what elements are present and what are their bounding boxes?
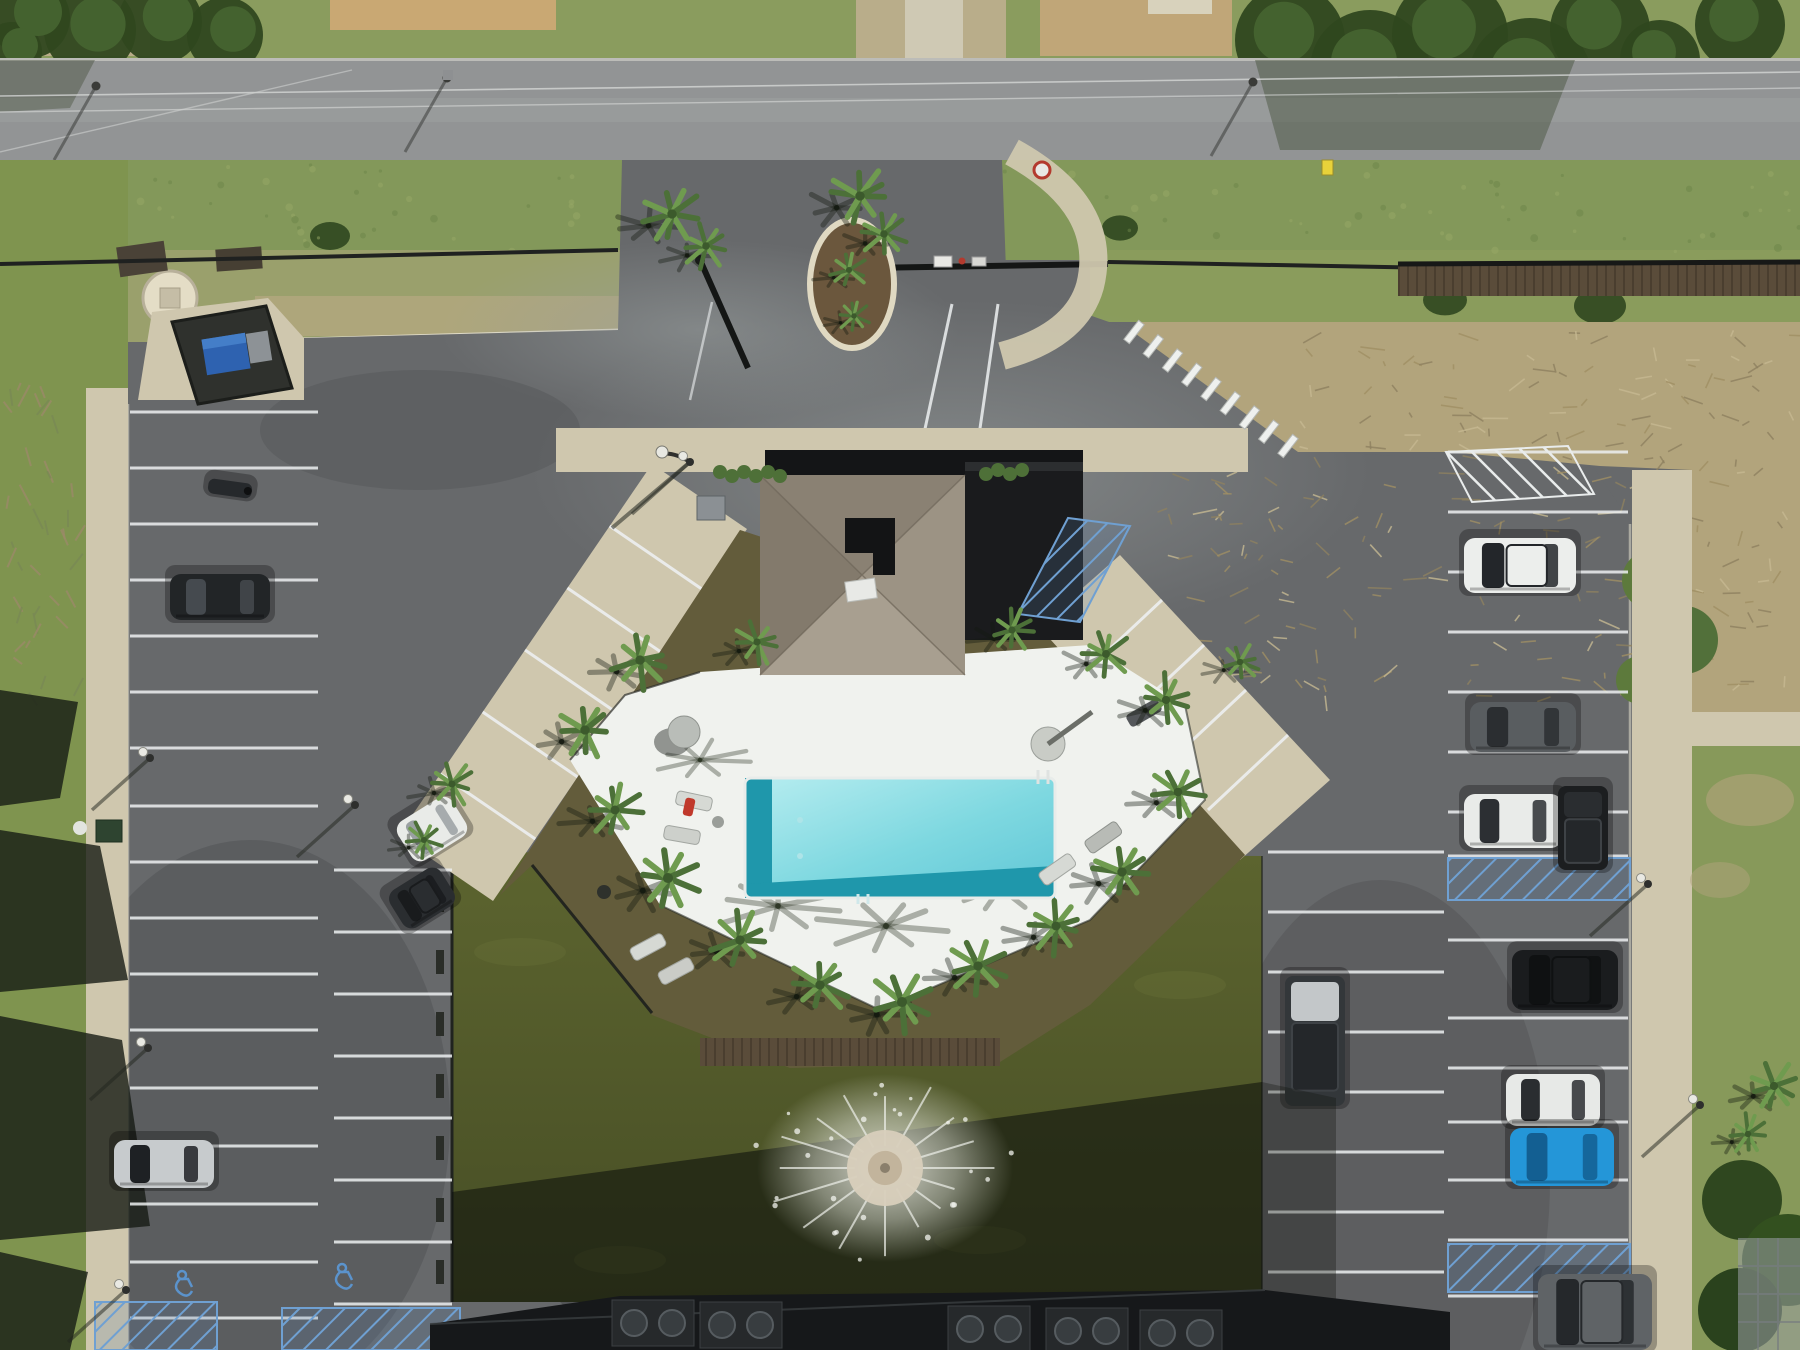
side-table	[712, 816, 724, 828]
grass-fleck	[1372, 162, 1379, 169]
palm-crown	[1174, 788, 1183, 797]
skylight	[845, 578, 877, 602]
grass-fleck	[157, 206, 162, 211]
grass-fleck	[378, 183, 383, 188]
brush-stroke	[1789, 335, 1800, 336]
brush-stroke	[1737, 472, 1745, 473]
grass-fleck	[1128, 229, 1132, 233]
grass-fleck	[1440, 231, 1444, 235]
grass-fleck	[285, 203, 293, 211]
palm-crown	[663, 873, 673, 883]
condenser-fan	[659, 1310, 685, 1336]
lamp-head	[139, 748, 148, 757]
palm-crown	[846, 267, 852, 273]
no-parking-stripes	[1446, 446, 1594, 502]
palm-crown	[448, 780, 455, 787]
grass-fleck	[1573, 229, 1577, 233]
grass-fleck	[1428, 210, 1432, 214]
yellow-sign	[1322, 160, 1333, 175]
grass-fleck	[406, 196, 412, 202]
condenser-fan	[1149, 1320, 1175, 1346]
palm-crown	[897, 997, 907, 1007]
pole-base	[144, 1044, 152, 1052]
palm-crown	[580, 725, 589, 734]
grass-fleck	[372, 228, 376, 232]
palm-crown	[1102, 650, 1110, 658]
grass-fleck	[1489, 180, 1493, 184]
grass-fleck	[1561, 174, 1564, 177]
grass-fleck	[1380, 205, 1386, 211]
boardwalk-fence	[1398, 264, 1800, 296]
transformer	[443, 70, 453, 80]
brush-stroke	[1229, 524, 1242, 525]
lamp-head	[1637, 874, 1646, 883]
white-car-mid	[1459, 785, 1567, 851]
spray-droplet	[775, 1196, 779, 1200]
condenser-fan	[621, 1310, 647, 1336]
palm-crown	[1745, 1131, 1751, 1137]
spray-droplet	[831, 1196, 837, 1202]
palm-crown	[1770, 1082, 1778, 1090]
gray-bin	[246, 330, 272, 363]
rear-window	[1583, 1134, 1598, 1180]
grass-fleck	[209, 202, 212, 205]
grass-fleck	[265, 214, 268, 217]
tree-shadow-on-road	[1255, 60, 1575, 150]
grass-fleck	[354, 190, 359, 195]
grass-fleck	[1445, 233, 1452, 240]
grass-fleck	[364, 171, 367, 174]
grass-fleck	[1388, 212, 1395, 219]
grass-fleck	[1774, 244, 1782, 252]
grass-fleck	[1363, 172, 1370, 179]
grass-fleck	[1234, 183, 1239, 188]
grass-fleck	[1345, 221, 1352, 228]
building-shadow-on-aisle	[1262, 1082, 1336, 1302]
grass-fleck	[1212, 189, 1219, 196]
grass-fleck	[1750, 186, 1753, 189]
white-suv	[1459, 529, 1581, 596]
palm-crown	[753, 638, 760, 645]
windshield	[186, 579, 206, 615]
grass-fleck	[568, 220, 575, 227]
spray-droplet	[963, 1117, 968, 1122]
spray-droplet	[952, 1202, 957, 1207]
pole-base	[1696, 1101, 1704, 1109]
truck-bed	[1292, 1023, 1338, 1091]
windshield	[1480, 799, 1500, 843]
windshield	[130, 1145, 150, 1183]
ac-pad	[612, 1300, 694, 1346]
grass-fleck	[1787, 209, 1790, 212]
pole-base	[351, 801, 359, 809]
windshield	[1556, 1279, 1579, 1345]
rear-window	[184, 1146, 198, 1182]
dirt-spot	[1706, 774, 1794, 826]
boardwalk-rail	[1398, 262, 1800, 264]
truck-bed	[1565, 819, 1601, 863]
gate-sign-1	[934, 256, 952, 267]
pole-base	[686, 458, 694, 466]
grass-fleck	[1003, 169, 1007, 173]
grass-fleck	[392, 210, 398, 216]
pole-base	[122, 1286, 130, 1294]
lamp-head	[656, 446, 668, 458]
black-pickup	[1553, 777, 1613, 873]
spray-droplet	[909, 1097, 912, 1100]
spray-droplet	[1009, 1150, 1014, 1155]
hedge-shrub	[1003, 467, 1017, 481]
brush-stroke	[1735, 459, 1736, 466]
tree-highlight	[1254, 2, 1315, 63]
palm-crown	[880, 230, 888, 238]
grass-fleck	[1495, 193, 1499, 197]
palm-crown	[635, 655, 644, 664]
gray-sedan	[1465, 693, 1581, 755]
boardwalk	[700, 1038, 1000, 1066]
grass-fleck	[1150, 194, 1158, 202]
spray-droplet	[946, 1121, 950, 1125]
palm-shadow-frond	[967, 639, 994, 642]
grass-fleck	[1768, 171, 1774, 177]
algae-patch	[1134, 971, 1226, 999]
lamp-head	[679, 452, 688, 461]
gate-sign-2	[972, 257, 986, 266]
condenser-fan	[995, 1316, 1021, 1342]
grass-fleck	[1784, 191, 1789, 196]
grass-fleck	[1493, 181, 1500, 188]
curb-stop	[436, 1198, 444, 1222]
spray-droplet	[969, 1170, 973, 1174]
grass-fleck	[168, 180, 172, 184]
curb-stop	[436, 950, 444, 974]
curb-pad	[1148, 0, 1212, 14]
hatch-area	[95, 1302, 217, 1350]
grass-fleck	[217, 182, 224, 189]
grass-fleck	[171, 216, 174, 219]
hedge-shrub	[991, 463, 1005, 477]
car-body	[1470, 702, 1576, 752]
palm-crown	[1052, 922, 1061, 931]
hedge-shrub	[725, 469, 739, 483]
pole-base	[1644, 880, 1652, 888]
hedge-shrub	[737, 465, 751, 479]
lamp-head	[137, 1038, 146, 1047]
grass-fleck	[569, 203, 574, 208]
grass-fleck	[1759, 209, 1763, 213]
pool-deep-edge-west	[745, 778, 772, 898]
palm-crown	[815, 980, 824, 989]
condenser-fan	[957, 1316, 983, 1342]
grass-fleck	[527, 204, 531, 208]
grass-fleck	[1623, 237, 1626, 240]
grass-fleck	[1461, 185, 1466, 190]
hedge-shrub	[979, 467, 993, 481]
palm-crown	[1008, 626, 1015, 633]
car-body	[170, 574, 270, 620]
grass-fleck	[1710, 232, 1716, 238]
car-body	[1506, 1074, 1600, 1126]
pad-hatch-lid	[160, 288, 180, 308]
grass-fleck	[1555, 191, 1559, 195]
side-path	[1692, 712, 1800, 746]
grass-fleck	[291, 216, 298, 223]
palm-crown	[702, 242, 710, 250]
spray-droplet	[772, 1203, 777, 1208]
aerial-photo-stage	[0, 0, 1800, 1350]
condenser-fan	[1187, 1320, 1213, 1346]
rear-window	[1544, 708, 1559, 746]
tire-wear	[260, 370, 580, 490]
rear-window	[1533, 800, 1547, 842]
roof-rails	[1552, 957, 1590, 1003]
curb-stop	[436, 1136, 444, 1160]
palm-shadow-frond	[559, 821, 593, 823]
grass-fleck	[1501, 205, 1505, 209]
truck-cab	[1291, 982, 1339, 1021]
pool-light-dot-2	[797, 853, 803, 859]
rear-window	[1572, 1080, 1585, 1120]
silver-car-left	[109, 1131, 219, 1191]
utility-cabinet	[697, 496, 725, 520]
bush	[310, 222, 350, 250]
grass-fleck	[1674, 250, 1677, 253]
utility-pole	[1249, 78, 1258, 87]
brush-stroke	[1471, 665, 1479, 666]
palm-crown	[1117, 867, 1126, 876]
brush-stroke	[1697, 525, 1698, 532]
utility-box-green	[96, 820, 122, 842]
windshield	[1527, 1133, 1548, 1181]
pool-light-dot	[797, 817, 803, 823]
brush-stroke	[1273, 637, 1287, 638]
dirt-spot-2	[1690, 862, 1750, 898]
brush-stroke	[1616, 645, 1634, 646]
spray-droplet	[925, 1235, 931, 1241]
hedge-shrub	[713, 465, 727, 479]
palm-crown	[851, 313, 856, 318]
round-table-nw	[668, 716, 700, 748]
tree-highlight	[210, 6, 256, 52]
palm-crown	[667, 209, 676, 218]
grass-fleck	[1576, 209, 1583, 216]
windshield	[1521, 1079, 1540, 1121]
spray-droplet	[832, 1231, 837, 1236]
grass-fleck	[1688, 239, 1692, 243]
black-car-left	[165, 565, 275, 623]
brush-stroke	[1211, 516, 1222, 517]
curb-stop	[436, 1260, 444, 1284]
car-body	[1464, 794, 1562, 848]
hip-roof	[760, 475, 965, 675]
spray-droplet	[787, 1112, 790, 1115]
roof-rails	[1581, 1281, 1622, 1343]
grass-fleck	[137, 197, 145, 205]
car-body	[1510, 1128, 1614, 1186]
ac-pad	[1046, 1308, 1128, 1350]
nozzle	[880, 1163, 890, 1173]
pole-base	[146, 754, 154, 762]
ac-pad	[1140, 1310, 1222, 1350]
palm-crown	[735, 935, 744, 944]
spray-droplet	[898, 1112, 903, 1117]
grass-fleck	[262, 178, 269, 185]
grass-fleck	[557, 177, 560, 180]
spray-droplet	[794, 1128, 800, 1134]
brush-stroke	[1563, 407, 1578, 408]
grass-fleck	[1400, 203, 1406, 209]
exit-gate-closed	[870, 264, 1108, 268]
curb-stop	[436, 1074, 444, 1098]
grass-fleck	[1163, 218, 1168, 223]
grass-fleck	[1105, 195, 1109, 199]
lamp-head	[1689, 1095, 1698, 1104]
grass-fleck	[379, 169, 382, 172]
brush-stroke	[1368, 588, 1392, 589]
grass-fleck	[1299, 222, 1302, 225]
algae-patch	[474, 938, 566, 966]
hedge-shrub	[773, 469, 787, 483]
grass-fleck	[573, 212, 580, 219]
lamp-head	[115, 1280, 124, 1289]
palm-crown	[973, 961, 982, 970]
gate-sign-red	[959, 258, 966, 265]
grass-fleck	[1530, 234, 1538, 242]
palm-crown	[1162, 696, 1170, 704]
spray-droplet	[805, 1153, 810, 1158]
grass-fleck	[297, 229, 304, 236]
right-sidewalk	[1632, 470, 1692, 1350]
bush	[1102, 215, 1138, 240]
grass-fleck	[570, 174, 575, 179]
brush-stroke	[1727, 684, 1748, 685]
condenser-fan	[1055, 1318, 1081, 1344]
grass-fleck	[153, 178, 157, 182]
black-suv	[1507, 941, 1623, 1013]
grass-fleck	[1305, 231, 1308, 234]
windshield	[1482, 543, 1504, 588]
grass-fleck	[1491, 247, 1498, 254]
traffic-sign	[1034, 162, 1050, 178]
street	[0, 58, 1800, 162]
spray-droplet	[985, 1177, 990, 1182]
grass-fleck	[1131, 205, 1139, 213]
grass-fleck	[1213, 232, 1220, 239]
palm-crown	[421, 837, 427, 843]
condenser-fan	[709, 1312, 735, 1338]
roof-rails	[1507, 545, 1547, 586]
palm-crown	[611, 806, 620, 815]
blue-car	[1505, 1119, 1619, 1189]
brush-stroke	[1784, 676, 1785, 687]
condenser-fan	[1093, 1318, 1119, 1344]
spray-droplet	[861, 1117, 867, 1123]
truck-cab	[1564, 792, 1602, 817]
hedge-shrub	[1015, 463, 1029, 477]
spray-droplet	[893, 1108, 897, 1112]
rear-window	[240, 580, 254, 614]
grass-fleck	[1163, 190, 1170, 197]
grass-fleck	[303, 241, 310, 248]
trash-bin	[597, 885, 611, 899]
swimming-pool	[745, 770, 1055, 904]
grass-fleck	[226, 165, 230, 169]
car-body	[114, 1140, 214, 1188]
palm-crown	[855, 191, 864, 200]
ac-pad	[948, 1306, 1030, 1350]
satellite-dish	[73, 821, 87, 835]
brush-stroke	[1576, 331, 1577, 340]
spray-droplet	[873, 1092, 877, 1096]
grass-fleck	[1507, 218, 1510, 221]
ac-pad	[700, 1302, 782, 1348]
grass-fleck	[1355, 212, 1363, 220]
grass-fleck	[452, 237, 456, 241]
grass-fleck	[1686, 186, 1692, 192]
paver-drive	[330, 0, 556, 30]
gray-car-bottom	[1533, 1265, 1657, 1350]
windshield	[1487, 707, 1508, 747]
brush-stroke	[1745, 601, 1753, 602]
grass-fleck	[1289, 219, 1292, 222]
spray-droplet	[861, 1215, 867, 1221]
windshield	[1529, 955, 1550, 1005]
spray-droplet	[829, 1136, 833, 1140]
spray-droplet	[753, 1143, 758, 1148]
palm-crown	[1237, 659, 1243, 665]
grass-fleck	[1743, 211, 1749, 217]
grass-fleck	[317, 236, 320, 239]
spray-droplet	[879, 1083, 884, 1088]
brush-stroke	[1489, 429, 1490, 437]
condenser-fan	[747, 1312, 773, 1338]
grass-fleck	[1520, 205, 1527, 212]
lamp-head	[344, 795, 353, 804]
brush-stroke	[1615, 482, 1626, 487]
grass-fleck	[360, 233, 366, 239]
curb-stop	[436, 1012, 444, 1036]
grass-fleck	[309, 166, 316, 173]
grass-fleck	[1700, 233, 1706, 239]
pickup-pond	[1280, 967, 1350, 1109]
spray-droplet	[858, 1258, 862, 1262]
hedge-shrub	[749, 469, 763, 483]
grass-fleck	[430, 215, 438, 223]
utility-pole	[92, 82, 101, 91]
aerial-photo	[0, 0, 1800, 1350]
hedge-shrub	[761, 465, 775, 479]
walk-path	[905, 0, 963, 58]
